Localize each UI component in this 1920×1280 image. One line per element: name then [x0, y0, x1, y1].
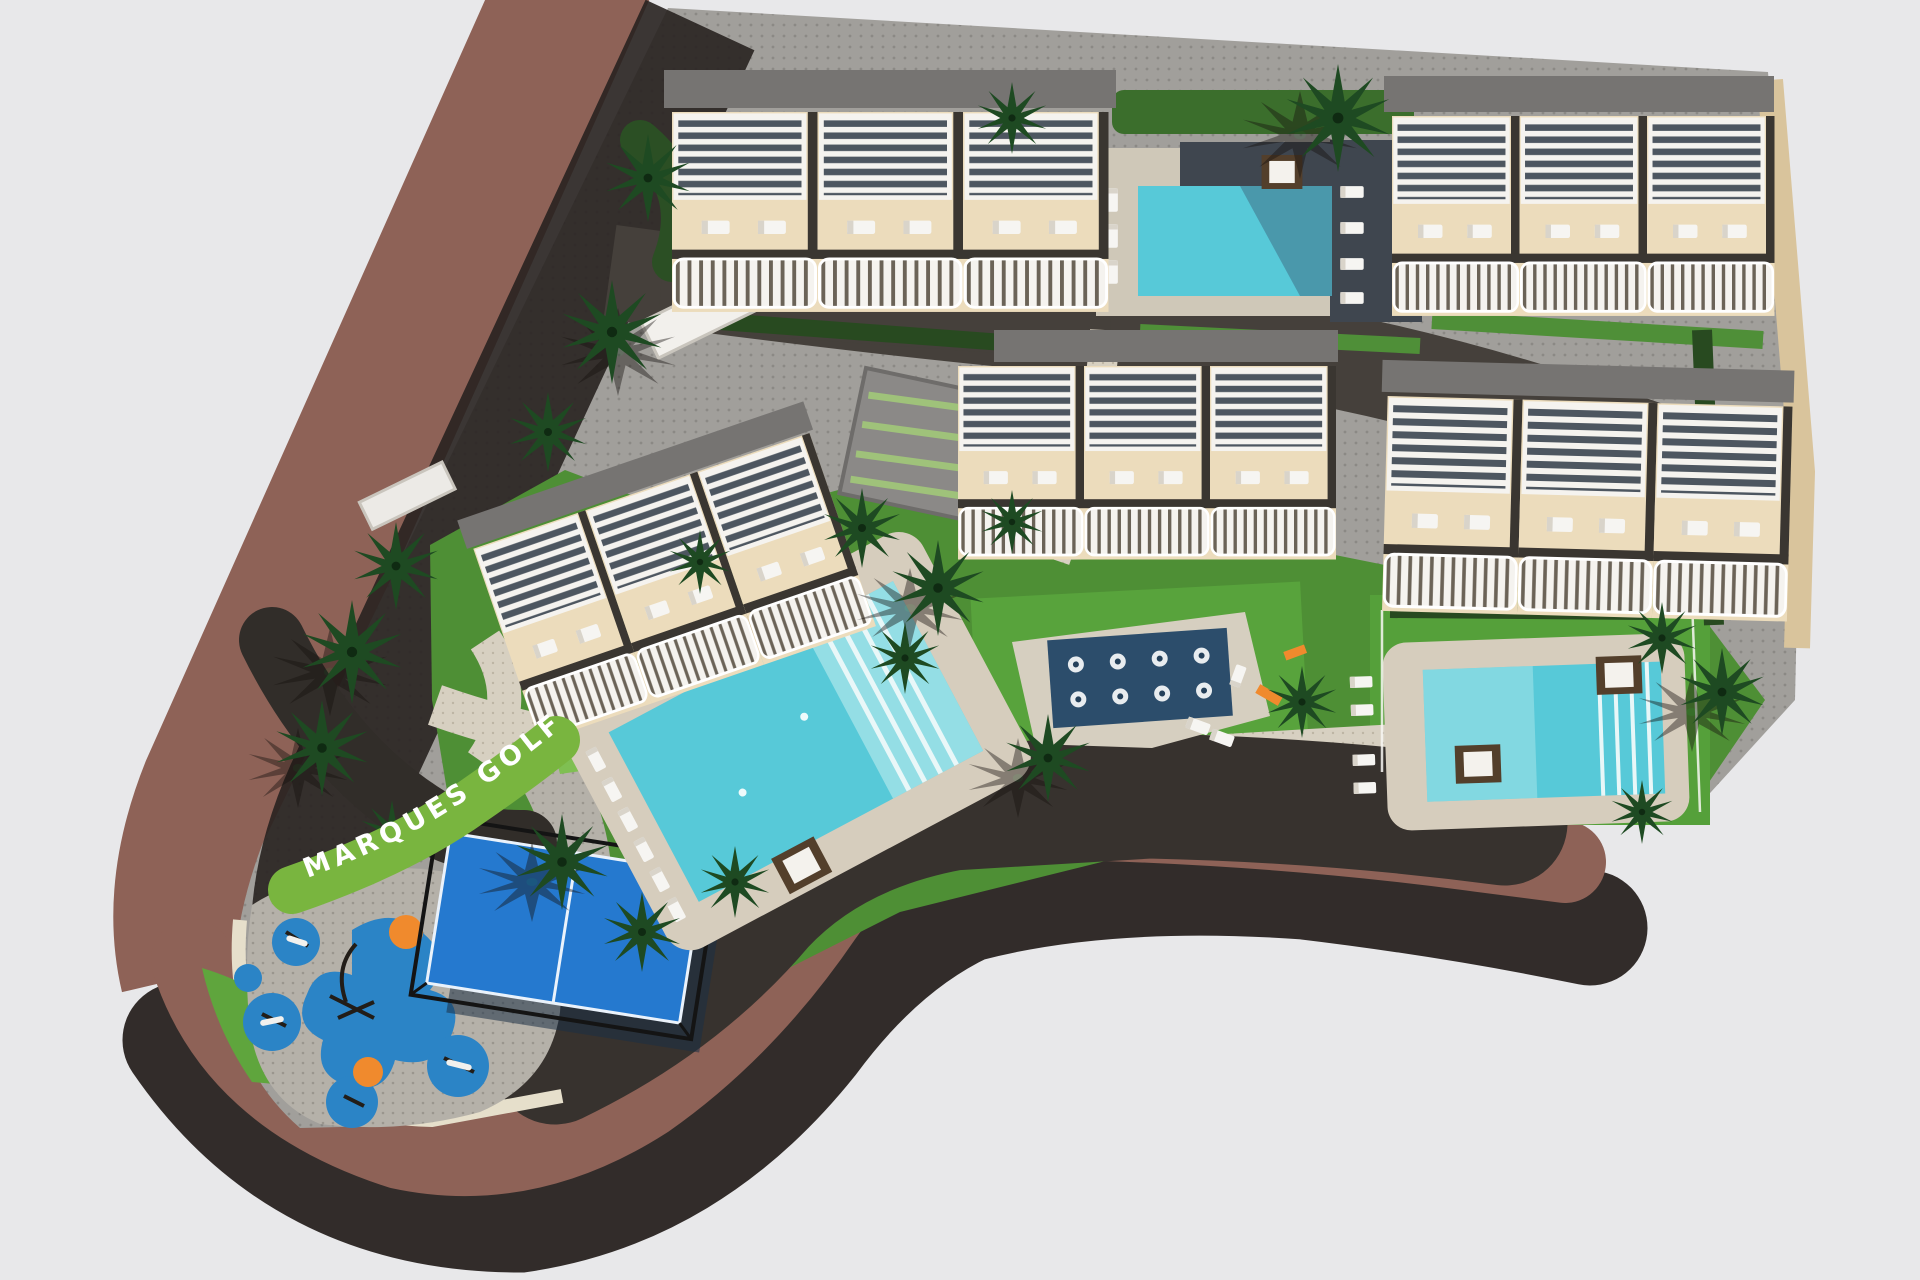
pool-right-daybed-2 — [1455, 744, 1502, 784]
pool-right-daybed-1 — [1596, 655, 1643, 695]
building-row-top-right — [1384, 76, 1775, 316]
jet-pool-water — [1047, 628, 1233, 728]
building-row-top-left — [664, 70, 1116, 312]
site-plan-render: MARQUES GOLF — [0, 0, 1920, 1280]
pool-top — [1096, 140, 1422, 322]
